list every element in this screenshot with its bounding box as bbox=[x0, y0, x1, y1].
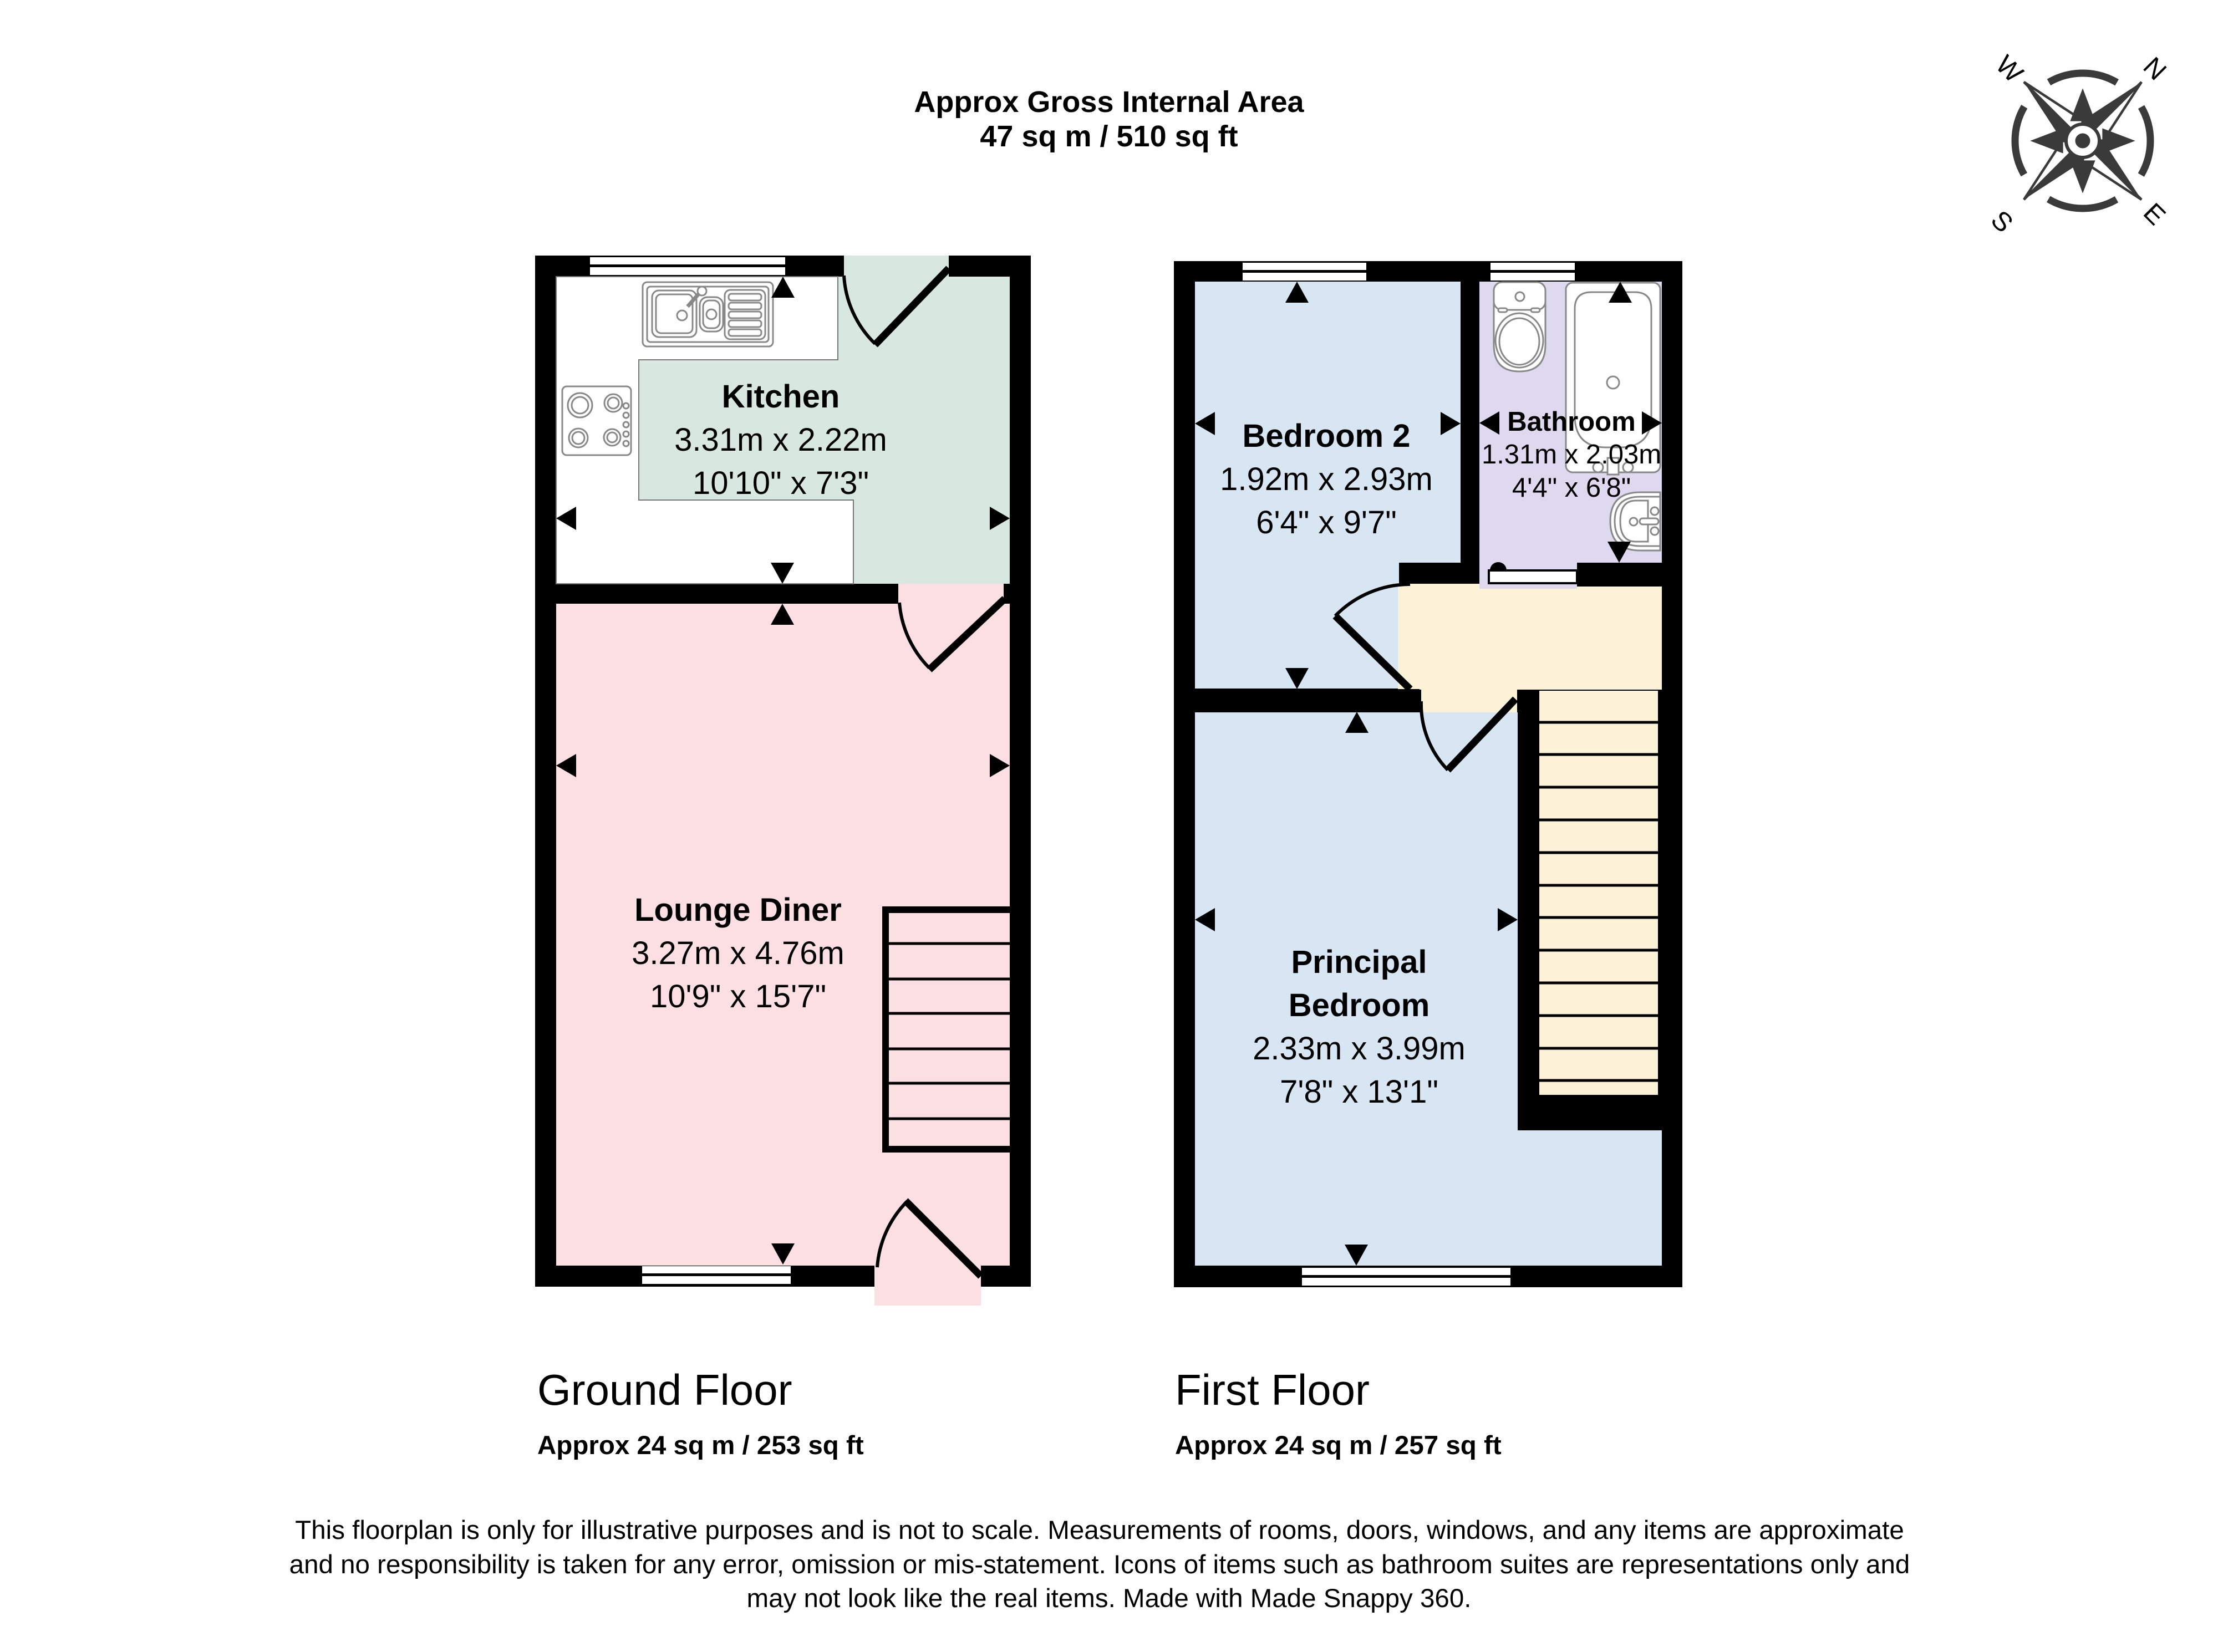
svg-text:7'8" x 13'1": 7'8" x 13'1" bbox=[1280, 1074, 1438, 1110]
svg-text:This floorplan is only for ill: This floorplan is only for illustrative … bbox=[295, 1516, 1904, 1545]
svg-text:W: W bbox=[1990, 50, 2029, 89]
svg-text:Approx 24 sq m / 253 sq ft: Approx 24 sq m / 253 sq ft bbox=[537, 1431, 864, 1460]
svg-text:2.33m x 3.99m: 2.33m x 3.99m bbox=[1253, 1031, 1466, 1067]
svg-text:Kitchen: Kitchen bbox=[722, 379, 840, 415]
svg-text:1.92m x 2.93m: 1.92m x 2.93m bbox=[1220, 461, 1433, 497]
svg-text:4'4" x 6'8": 4'4" x 6'8" bbox=[1512, 473, 1631, 503]
svg-text:Bedroom: Bedroom bbox=[1289, 987, 1430, 1023]
svg-text:3.27m x 4.76m: 3.27m x 4.76m bbox=[632, 935, 845, 971]
svg-text:First Floor: First Floor bbox=[1175, 1365, 1370, 1414]
svg-text:Bedroom 2: Bedroom 2 bbox=[1243, 418, 1411, 454]
svg-text:47 sq m / 510 sq ft: 47 sq m / 510 sq ft bbox=[980, 120, 1238, 153]
svg-text:S: S bbox=[1985, 205, 2018, 238]
svg-text:N: N bbox=[2138, 52, 2172, 86]
svg-text:Lounge Diner: Lounge Diner bbox=[634, 892, 842, 928]
svg-text:Principal: Principal bbox=[1291, 944, 1427, 980]
svg-text:Approx 24 sq m / 257 sq ft: Approx 24 sq m / 257 sq ft bbox=[1175, 1431, 1502, 1460]
svg-text:E: E bbox=[2138, 198, 2171, 231]
svg-text:3.31m x 2.22m: 3.31m x 2.22m bbox=[674, 422, 887, 458]
svg-text:Approx Gross Internal Area: Approx Gross Internal Area bbox=[914, 85, 1304, 119]
svg-text:10'10" x 7'3": 10'10" x 7'3" bbox=[693, 465, 869, 501]
svg-text:Ground Floor: Ground Floor bbox=[537, 1365, 792, 1414]
svg-text:1.31m x 2.03m: 1.31m x 2.03m bbox=[1482, 440, 1661, 470]
svg-text:10'9" x 15'7": 10'9" x 15'7" bbox=[650, 978, 826, 1014]
svg-text:and no responsibility is taken: and no responsibility is taken for any e… bbox=[289, 1550, 1910, 1579]
svg-text:may not look like the real ite: may not look like the real items. Made w… bbox=[747, 1584, 1472, 1613]
svg-text:Bathroom: Bathroom bbox=[1507, 407, 1635, 437]
svg-text:6'4" x 9'7": 6'4" x 9'7" bbox=[1256, 504, 1397, 541]
